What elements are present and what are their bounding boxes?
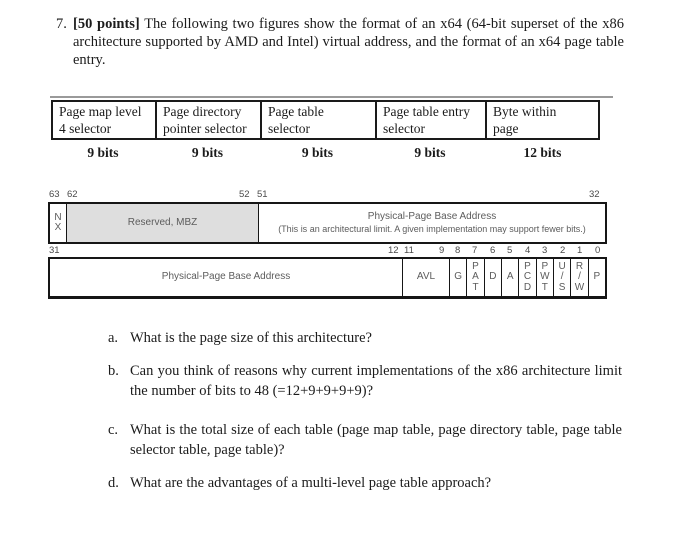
pte-field-a: A [502, 259, 519, 296]
pte-field-d: D [485, 259, 502, 296]
bit-label-6: 6 [490, 246, 495, 256]
subquestion-a-text: What is the page size of this architectu… [130, 328, 622, 348]
bit-label-11: 11 [404, 246, 414, 256]
pte-field-pcd: P C D [519, 259, 536, 296]
bit-label-32: 32 [589, 190, 600, 200]
subquestion-c-text: What is the total size of each table (pa… [130, 420, 622, 460]
question-paragraph: [50 points] The following two figures sh… [73, 15, 624, 69]
question-number: 7. [56, 15, 67, 33]
pte-field-p: P [589, 259, 605, 296]
pte-field-nx: N X [50, 204, 67, 242]
bit-counts-row: 9 bits 9 bits 9 bits 9 bits 12 bits [51, 145, 600, 161]
bit-label-5: 5 [507, 246, 512, 256]
pte-field-rw: R / W [571, 259, 588, 296]
subquestion-c-marker: c. [108, 420, 128, 440]
pte-field-physical-page-base-lower: Physical-Page Base Address [50, 259, 403, 296]
pte-field-g: G [450, 259, 467, 296]
bit-count-byte: 12 bits [485, 145, 600, 161]
bit-label-3: 3 [542, 246, 547, 256]
bit-label-8: 8 [455, 246, 460, 256]
bit-label-7: 7 [472, 246, 477, 256]
bit-label-1: 1 [577, 246, 582, 256]
pte-field-reserved-mbz: Reserved, MBZ [67, 204, 259, 242]
va-field-page-table-selector: Page table selector [262, 102, 377, 138]
ppba-title: Physical-Page Base Address [368, 212, 496, 223]
subquestion-b-text: Can you think of reasons why current imp… [130, 361, 622, 401]
subquestion-d-marker: d. [108, 473, 128, 493]
virtual-address-table: Page map level 4 selector Page directory… [51, 100, 600, 140]
pte-lower-dword: Physical-Page Base Address AVL G P A T D… [48, 257, 607, 299]
bit-label-51: 51 [257, 190, 268, 200]
bit-label-52: 52 [239, 190, 250, 200]
va-field-byte-within-page: Byte within page [487, 102, 598, 138]
question-body-text: The following two figures show the forma… [73, 16, 624, 68]
pte-field-pwt: P W T [537, 259, 554, 296]
bit-count-pte: 9 bits [375, 145, 485, 161]
pte-field-pat: P A T [467, 259, 484, 296]
bit-label-0: 0 [595, 246, 600, 256]
bit-label-62: 62 [67, 190, 78, 200]
bit-label-2: 2 [560, 246, 565, 256]
bit-label-9: 9 [439, 246, 444, 256]
va-field-page-table-entry-selector: Page table entry selector [377, 102, 487, 138]
va-field-page-map-level4: Page map level 4 selector [53, 102, 157, 138]
subquestion-d-text: What are the advantages of a multi-level… [130, 473, 622, 493]
ppba-note: (This is an architectural limit. A given… [278, 224, 586, 234]
bit-label-4: 4 [525, 246, 530, 256]
pte-upper-dword: N X Reserved, MBZ Physical-Page Base Add… [48, 202, 607, 244]
bit-label-63: 63 [49, 190, 60, 200]
bit-count-pml4: 9 bits [51, 145, 155, 161]
subquestion-b-marker: b. [108, 361, 128, 381]
subquestion-a-marker: a. [108, 328, 128, 348]
points-label: [50 points] [73, 16, 140, 32]
divider-line [50, 96, 613, 98]
pte-field-avl: AVL [403, 259, 450, 296]
bit-count-pdp: 9 bits [155, 145, 260, 161]
bit-label-31: 31 [49, 246, 60, 256]
pte-field-physical-page-base-upper: Physical-Page Base Address (This is an a… [259, 204, 605, 242]
bit-label-12: 12 [388, 246, 399, 256]
pte-field-us: U / S [554, 259, 571, 296]
bit-count-pt: 9 bits [260, 145, 375, 161]
va-field-page-directory-pointer: Page directory pointer selector [157, 102, 262, 138]
document-page: 7. [50 points] The following two figures… [0, 0, 690, 542]
